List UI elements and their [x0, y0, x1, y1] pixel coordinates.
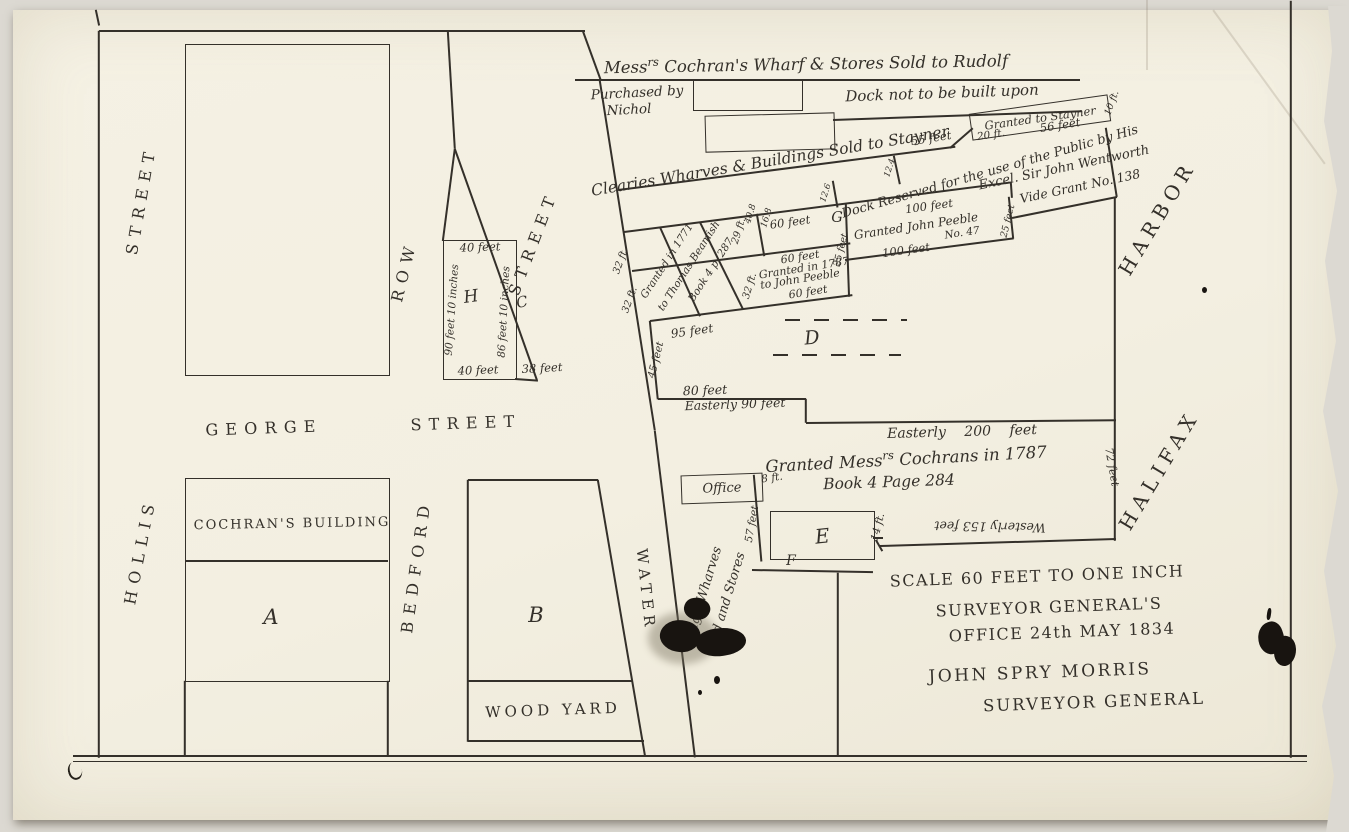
measurement-38-feet: 38 feet [521, 360, 562, 376]
block-left-extension-line [184, 681, 186, 757]
block-b-left-line [467, 480, 469, 742]
frame-top-line [99, 30, 585, 32]
ink-speck [698, 690, 702, 695]
measurement-40-feet-top: 40 feet [459, 239, 500, 254]
block-b-top-line [468, 479, 598, 481]
frame-left-line [98, 31, 100, 758]
ink-speck [714, 676, 720, 684]
parcel-f-label: F [786, 553, 796, 569]
parcel-b-label: B [528, 603, 543, 627]
parcel-d-jog-vertical-line [805, 399, 807, 423]
office-label: Office [702, 480, 741, 496]
frame-bottom-line [73, 755, 1307, 757]
parcel-f-descending-line [837, 573, 839, 756]
block-b-bottom-line [468, 680, 633, 682]
superscript: rs [647, 55, 659, 69]
title-underline [575, 79, 1080, 81]
block-cochrans-building [185, 478, 390, 682]
parcel-d-dash-row-2 [773, 354, 901, 356]
survey-map-scan: Messrs Cochran's Wharf & Stores Sold to … [0, 0, 1349, 832]
block-northwest [185, 44, 390, 376]
parcel-e-label: E [814, 523, 831, 548]
measurement-westerly-153: Westerly 153 feet [934, 519, 1046, 536]
paper-crease [1146, 0, 1148, 70]
parcel-h-label: H [462, 286, 479, 308]
measurement-80-feet: 80 feet [683, 382, 728, 399]
parcel-a-label: A [263, 605, 278, 629]
note-text: Mess [604, 58, 648, 78]
office-box: Office [681, 473, 764, 505]
block-right-extension-line [387, 681, 389, 757]
measurement-40-feet-bottom: 40 feet [457, 362, 498, 377]
frame-bottom-line-2 [73, 761, 1307, 762]
parcel-d-label: D [803, 326, 820, 349]
cochrans-block-divider-line [186, 560, 388, 562]
empty-lot-box-1 [693, 80, 803, 111]
street-label-george-street: STREET [410, 412, 522, 435]
note-purchased-by-nichol: Nichol [606, 101, 652, 119]
parcel-d-right-line [1114, 197, 1116, 541]
superscript: rs [882, 448, 894, 463]
parcel-d-dash-row-1 [785, 319, 907, 321]
wood-yard-bottom-line [468, 740, 644, 742]
parcel-g-label: G [831, 210, 843, 226]
ink-dot [1202, 287, 1207, 293]
